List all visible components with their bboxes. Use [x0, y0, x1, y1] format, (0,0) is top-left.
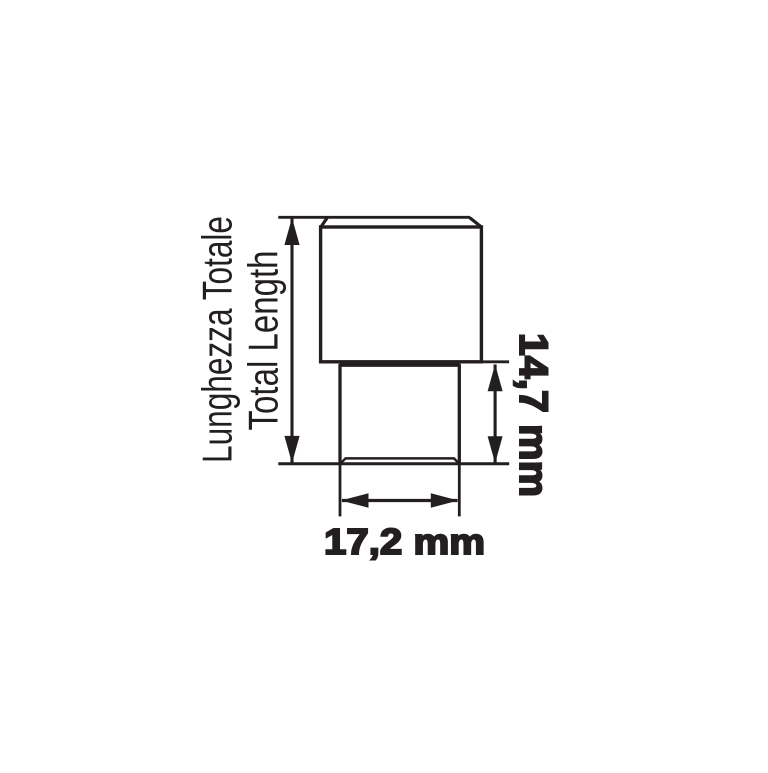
svg-text:14,7 mm: 14,7 mm [511, 333, 555, 497]
svg-text:17,2 mm: 17,2 mm [324, 521, 485, 562]
svg-text:Lunghezza Totale: Lunghezza Totale [194, 216, 241, 463]
svg-text:Total Length: Total Length [240, 251, 287, 431]
